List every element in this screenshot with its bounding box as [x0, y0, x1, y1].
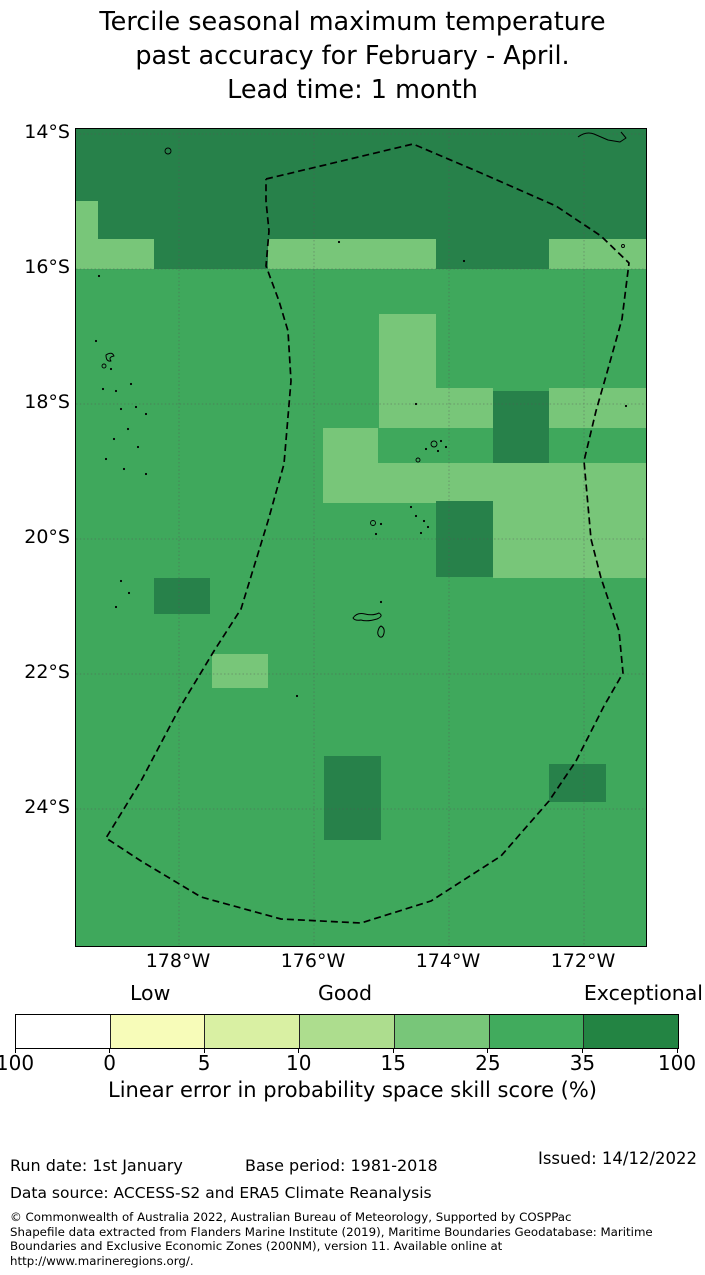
skill-cell [268, 239, 436, 269]
island-dot [425, 448, 427, 450]
colorbar-tick-label: 100 [0, 1051, 34, 1075]
skill-cell [493, 463, 646, 578]
colorbar-category-exceptional: Exceptional [584, 981, 703, 1005]
island-dot [440, 440, 442, 442]
skill-cell [76, 129, 646, 201]
island-dot [135, 406, 137, 408]
run-date-text: Run date: 1st January [10, 1156, 183, 1175]
copyright-line3: Boundaries and Exclusive Economic Zones … [10, 1239, 680, 1254]
island-dot [145, 473, 147, 475]
island-dot [95, 340, 97, 342]
island-dot [120, 408, 122, 410]
island-dot [113, 438, 115, 440]
data-source-text: Data source: ACCESS-S2 and ERA5 Climate … [10, 1184, 432, 1202]
y-axis-label-24s: 24°S [14, 796, 70, 818]
skill-cell [324, 756, 381, 840]
island-dot [123, 468, 125, 470]
x-axis-label-178w: 178°W [133, 950, 223, 972]
island-dot [145, 413, 147, 415]
copyright-line1: © Commonwealth of Australia 2022, Austra… [10, 1210, 680, 1225]
skill-cell [379, 388, 493, 428]
skill-cell [98, 239, 154, 269]
island-dot [625, 405, 627, 407]
skill-cell [76, 201, 98, 269]
colorbar-segment [110, 1015, 205, 1048]
colorbar-tick-label: 5 [198, 1051, 211, 1075]
y-axis-label-14s: 14°S [14, 121, 70, 143]
colorbar-tick-label: 100 [658, 1051, 696, 1075]
skill-cell [493, 391, 549, 463]
copyright-line4: http://www.marineregions.org/. [10, 1254, 680, 1269]
copyright-text: © Commonwealth of Australia 2022, Austra… [10, 1210, 680, 1268]
y-axis-label-16s: 16°S [14, 256, 70, 278]
island-dot [296, 695, 298, 697]
skill-cell [549, 388, 646, 428]
island-dot [115, 606, 117, 608]
island-dot [410, 506, 412, 508]
map-plot [75, 128, 647, 947]
colorbar-segment [583, 1015, 678, 1048]
y-axis-label-20s: 20°S [14, 526, 70, 548]
island-dot [105, 458, 107, 460]
colorbar-category-good: Good [318, 981, 372, 1005]
skill-cell [98, 201, 646, 239]
copyright-line2: Shapefile data extracted from Flanders M… [10, 1225, 680, 1240]
skill-cell [154, 239, 268, 269]
island-dot [127, 428, 129, 430]
x-axis-label-174w: 174°W [403, 950, 493, 972]
base-period-text: Base period: 1981-2018 [245, 1156, 438, 1175]
island-dot [437, 450, 439, 452]
island-dot [445, 446, 447, 448]
colorbar-segment [394, 1015, 489, 1048]
colorbar-axis-label: Linear error in probability space skill … [0, 1078, 705, 1102]
island-dot [427, 526, 429, 528]
colorbar [15, 1014, 679, 1049]
colorbar-segment [204, 1015, 299, 1048]
island-dot [98, 275, 100, 277]
island-dot [375, 533, 377, 535]
chart-title-line2: past accuracy for February - April. [0, 39, 705, 73]
chart-title-line3: Lead time: 1 month [0, 73, 705, 107]
island-dot [130, 383, 132, 385]
y-axis-label-22s: 22°S [14, 661, 70, 683]
x-axis-label-172w: 172°W [538, 950, 628, 972]
island-dot [115, 390, 117, 392]
island-dot [120, 580, 122, 582]
colorbar-segment [489, 1015, 584, 1048]
y-axis-label-18s: 18°S [14, 391, 70, 413]
colorbar-segment [299, 1015, 394, 1048]
island-dot [415, 403, 417, 405]
island-dot [110, 368, 112, 370]
colorbar-category-low: Low [130, 981, 170, 1005]
figure: Tercile seasonal maximum temperature pas… [0, 0, 705, 1275]
skill-cell [549, 239, 646, 269]
skill-cell [154, 578, 210, 614]
x-axis-label-176w: 176°W [268, 950, 358, 972]
issued-date-text: Issued: 14/12/2022 [538, 1149, 697, 1168]
island-dot [415, 515, 417, 517]
skill-cell [323, 428, 378, 503]
map-canvas [76, 129, 646, 946]
colorbar-tick-label: 15 [381, 1051, 406, 1075]
skill-cell [378, 463, 493, 503]
colorbar-tick-label: 0 [103, 1051, 116, 1075]
island-dot [102, 388, 104, 390]
colorbar-segment [16, 1015, 110, 1048]
colorbar-tick-label: 25 [475, 1051, 500, 1075]
colorbar-tick-label: 35 [570, 1051, 595, 1075]
skill-cell [436, 239, 549, 269]
island-dot [137, 446, 139, 448]
island-dot [423, 520, 425, 522]
skill-cell [379, 314, 436, 388]
island-dot [380, 601, 382, 603]
island-dot [128, 592, 130, 594]
island-dot [338, 241, 340, 243]
chart-title: Tercile seasonal maximum temperature pas… [0, 5, 705, 107]
colorbar-tick-label: 10 [286, 1051, 311, 1075]
chart-title-line1: Tercile seasonal maximum temperature [0, 5, 705, 39]
skill-cell [549, 764, 606, 802]
island-dot [463, 260, 465, 262]
island-dot [420, 532, 422, 534]
skill-cell [212, 654, 268, 688]
island-dot [380, 523, 382, 525]
